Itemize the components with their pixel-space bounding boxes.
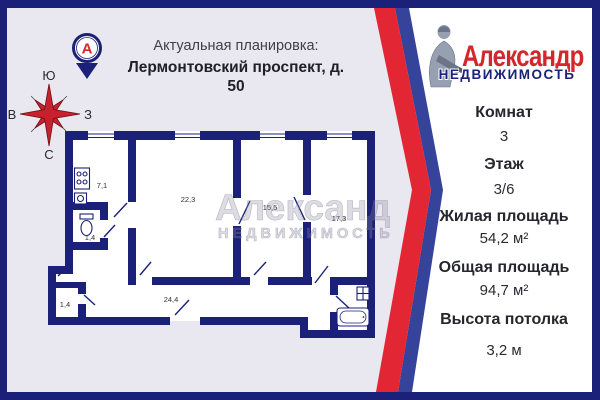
watermark: Александр НЕДВИЖИМОСТЬ <box>215 187 413 242</box>
detail-label-ceiling: Высота потолка <box>418 311 590 329</box>
toilet-icon <box>80 214 93 219</box>
watermark-line2: НЕДВИЖИМОСТЬ <box>218 226 394 242</box>
detail-value-rooms: 3 <box>418 128 590 145</box>
detail-label-total-area: Общая площадь <box>418 259 590 277</box>
detail-value-floor: 3/6 <box>418 181 590 198</box>
room-label-living: 22,3 <box>181 195 196 204</box>
header-title: Актуальная планировка: Лермонтовский про… <box>118 37 354 96</box>
compass-label-left: В <box>8 107 17 122</box>
compass-label-top: Ю <box>42 68 55 83</box>
detail-label-rooms: Комнат <box>418 104 590 122</box>
stove-icon <box>75 168 90 189</box>
room-label-storage: 1,4 <box>60 300 70 309</box>
compass-label-bottom: С <box>44 147 53 162</box>
detail-value-total-area: 94,7 м² <box>418 282 590 299</box>
title-line2: Лермонтовский проспект, д. 50 <box>118 58 354 96</box>
sink-icon <box>75 193 87 204</box>
detail-label-floor: Этаж <box>418 156 590 174</box>
room-label-wc: 1,4 <box>85 233 95 242</box>
floor-plan: 7,1 1,4 22,3 15,5 17,3 1,4 24,4 Александ… <box>48 131 413 338</box>
detail-label-living-area: Жилая площадь <box>418 208 590 226</box>
detail-value-ceiling: 3,2 м <box>418 342 590 359</box>
property-details: Комнат 3 Этаж 3/6 Жилая площадь 54,2 м² … <box>418 0 590 400</box>
watermark-line1: Александр <box>215 187 413 228</box>
room-label-kitchen: 7,1 <box>97 181 107 190</box>
compass-label-right: З <box>84 107 92 122</box>
room-label-corridor: 24,4 <box>164 295 179 304</box>
pin-letter: А <box>82 41 93 58</box>
detail-value-living-area: 54,2 м² <box>418 230 590 247</box>
title-line1: Актуальная планировка: <box>118 37 354 56</box>
